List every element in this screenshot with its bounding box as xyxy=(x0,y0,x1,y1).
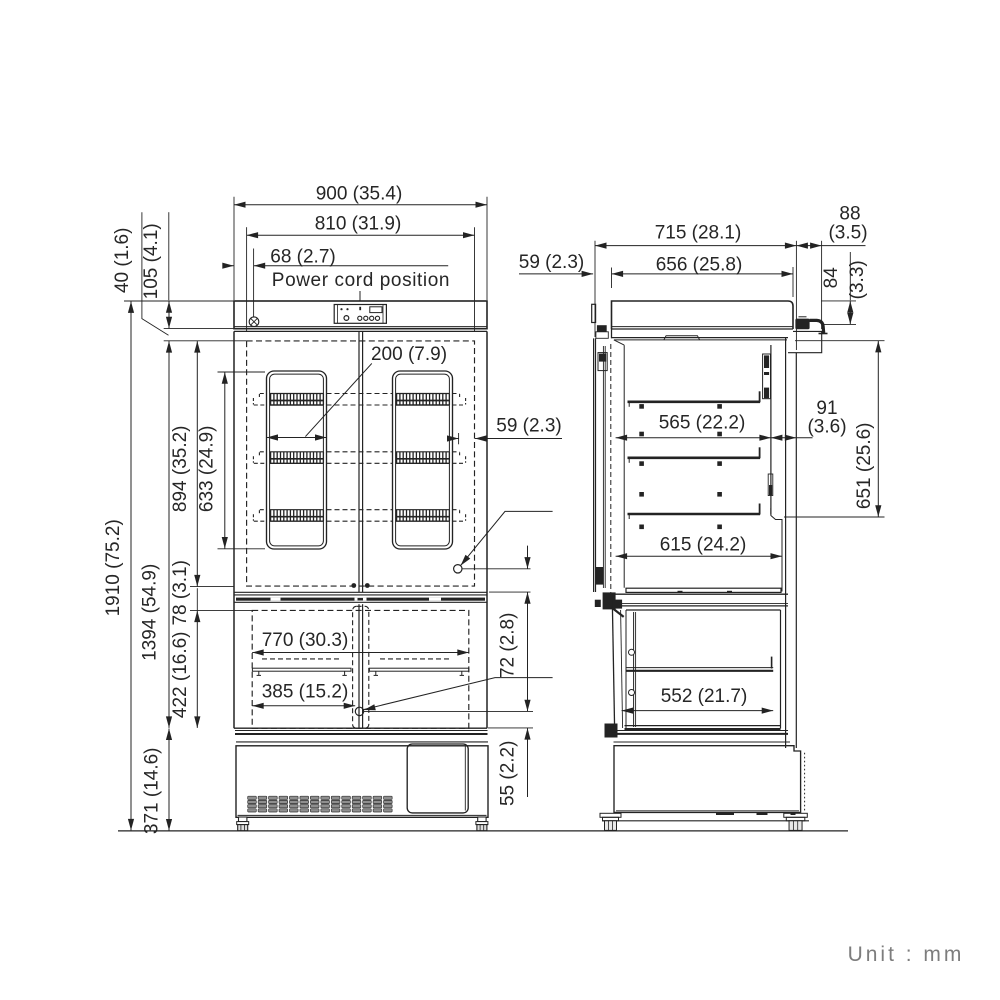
svg-text:68 (2.7): 68 (2.7) xyxy=(270,247,335,268)
svg-text:565 (22.2): 565 (22.2) xyxy=(659,413,746,434)
svg-text:40 (1.6): 40 (1.6) xyxy=(112,228,133,293)
svg-text:84: 84 xyxy=(821,267,842,289)
svg-text:770 (30.3): 770 (30.3) xyxy=(262,630,349,651)
svg-text:59 (2.3): 59 (2.3) xyxy=(519,252,584,273)
svg-text:371 (14.6): 371 (14.6) xyxy=(142,747,163,834)
svg-text:78 (3.1): 78 (3.1) xyxy=(170,560,191,625)
svg-text:Power cord position: Power cord position xyxy=(272,270,450,291)
svg-text:894 (35.2): 894 (35.2) xyxy=(170,425,191,512)
svg-text:900 (35.4): 900 (35.4) xyxy=(316,184,403,205)
svg-text:1394 (54.9): 1394 (54.9) xyxy=(140,564,161,661)
svg-text:55 (2.2): 55 (2.2) xyxy=(498,741,519,806)
svg-text:200 (7.9): 200 (7.9) xyxy=(371,344,447,365)
svg-text:552 (21.7): 552 (21.7) xyxy=(661,686,748,707)
svg-text:(3.5): (3.5) xyxy=(828,223,867,244)
svg-text:422 (16.6): 422 (16.6) xyxy=(170,631,191,718)
svg-text:656 (25.8): 656 (25.8) xyxy=(656,254,743,275)
svg-text:810 (31.9): 810 (31.9) xyxy=(315,214,402,235)
svg-text:651 (25.6): 651 (25.6) xyxy=(854,422,875,509)
svg-text:105 (4.1): 105 (4.1) xyxy=(141,223,162,299)
svg-text:Unit : mm: Unit : mm xyxy=(848,943,965,966)
svg-text:88: 88 xyxy=(839,204,860,225)
svg-text:715 (28.1): 715 (28.1) xyxy=(655,223,742,244)
svg-text:633 (24.9): 633 (24.9) xyxy=(197,425,218,512)
svg-text:615 (24.2): 615 (24.2) xyxy=(660,535,747,556)
svg-text:(3.6): (3.6) xyxy=(807,417,846,438)
svg-text:1910 (75.2): 1910 (75.2) xyxy=(103,519,124,616)
svg-text:72 (2.8): 72 (2.8) xyxy=(498,613,519,678)
svg-text:59 (2.3): 59 (2.3) xyxy=(496,416,561,437)
svg-text:385 (15.2): 385 (15.2) xyxy=(262,681,349,702)
